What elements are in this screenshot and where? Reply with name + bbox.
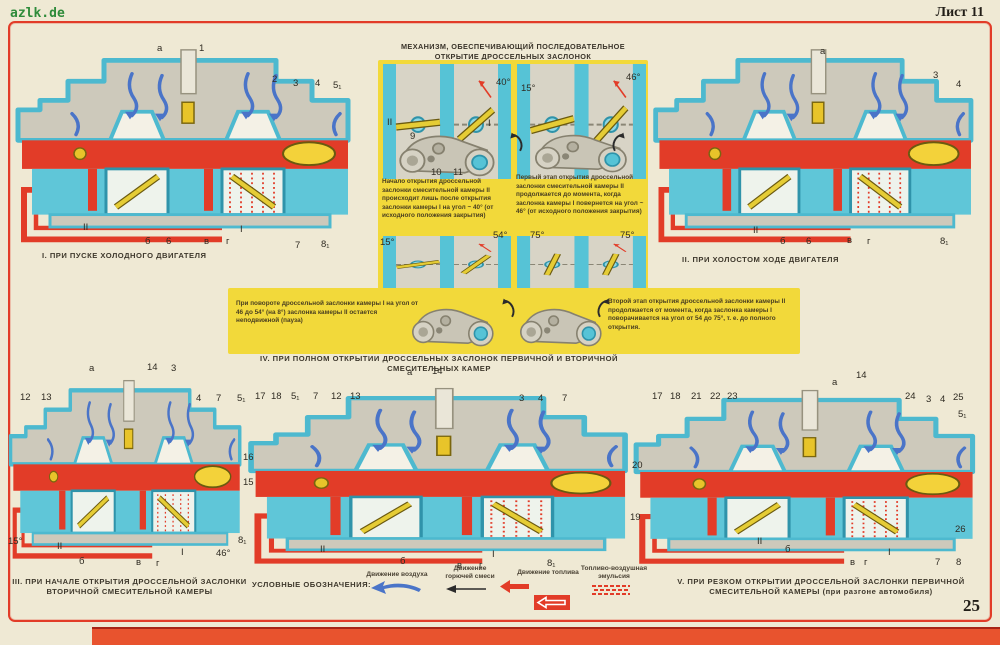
callout-label: 5₁ bbox=[291, 391, 300, 402]
callout-label: 15° bbox=[8, 536, 22, 547]
diagram-full-open: 17185₁71213а143471615IIбвгI8₁ bbox=[242, 366, 650, 570]
callout-label: 54° bbox=[493, 230, 507, 241]
callout-label: 3 bbox=[519, 393, 524, 404]
callout-label: 40° bbox=[496, 77, 510, 88]
text-stage1-start: Начало открытия дроссельной заслонки сме… bbox=[382, 178, 510, 236]
callout-label: 17 bbox=[652, 391, 663, 402]
callout-label: 75° bbox=[620, 230, 634, 241]
cam-lever-mechanism-left bbox=[390, 126, 502, 178]
cam-lever-mechanism-pause bbox=[404, 300, 500, 348]
callout-label: г bbox=[479, 560, 482, 571]
callout-label: в bbox=[457, 560, 462, 571]
callout-label: б bbox=[780, 236, 785, 247]
callout-label: в bbox=[136, 557, 141, 568]
legend-item-mixture: Движение горючей смеси bbox=[440, 565, 500, 599]
emulsion-hatch-icon bbox=[592, 583, 630, 597]
page-number: 25 bbox=[963, 596, 980, 616]
callout-label: 14 bbox=[432, 366, 443, 377]
callout-label: II bbox=[57, 541, 62, 552]
callout-label: 10 bbox=[431, 167, 442, 178]
callout-label: в bbox=[847, 235, 852, 246]
caption-diagram-5: V. ПРИ РЕЗКОМ ОТКРЫТИИ ДРОССЕЛЬНОЙ ЗАСЛО… bbox=[665, 577, 977, 598]
text-pause: При повороте дроссельной заслонки камеры… bbox=[236, 300, 420, 350]
callout-label: 4 bbox=[538, 393, 543, 404]
callout-label: 13 bbox=[41, 392, 52, 403]
callout-label: 4 bbox=[956, 79, 961, 90]
callout-label: 8 bbox=[956, 557, 961, 568]
callout-label: 1 bbox=[199, 43, 204, 54]
callout-label: г bbox=[864, 557, 867, 568]
throttle-bores-pause bbox=[383, 236, 511, 290]
callout-label: 5₁ bbox=[958, 409, 967, 420]
callout-label: 5₁ bbox=[333, 80, 342, 91]
callout-label: а bbox=[820, 46, 825, 57]
carburetor-section-cold-start bbox=[10, 47, 370, 247]
callout-label: 3 bbox=[293, 78, 298, 89]
callout-label: 15 bbox=[243, 477, 254, 488]
callout-label: 15° bbox=[380, 237, 394, 248]
callout-label: 18 bbox=[271, 391, 282, 402]
callout-label: I bbox=[488, 118, 491, 129]
callout-label: в bbox=[204, 236, 209, 247]
callout-label: 46° bbox=[626, 72, 640, 83]
callout-label: 12 bbox=[331, 391, 342, 402]
callout-label: а bbox=[157, 43, 162, 54]
legend-item-air: Движение воздуха bbox=[364, 571, 430, 600]
legend-title: УСЛОВНЫЕ ОБОЗНАЧЕНИЯ: bbox=[252, 580, 371, 589]
book-plate-page: { "page": { "watermark": "azlk.de", "she… bbox=[0, 0, 1000, 643]
callout-label: г bbox=[156, 558, 159, 569]
callout-label: 18 bbox=[670, 391, 681, 402]
callout-label: 8₁ bbox=[940, 236, 949, 247]
callout-label: а bbox=[89, 363, 94, 374]
callout-label: 7 bbox=[562, 393, 567, 404]
callout-label: 7 bbox=[935, 557, 940, 568]
callout-label: г bbox=[867, 236, 870, 247]
callout-label: 19 bbox=[630, 512, 641, 523]
air-flow-arrow-icon bbox=[369, 579, 423, 595]
caption-diagram-1: I. ПРИ ПУСКЕ ХОЛОДНОГО ДВИГАТЕЛЯ bbox=[42, 251, 206, 261]
callout-label: 75° bbox=[530, 230, 544, 241]
carburetor-section-full-open bbox=[242, 386, 650, 568]
callout-label: 4 bbox=[196, 393, 201, 404]
callout-label: I bbox=[888, 547, 891, 558]
callout-label: б bbox=[145, 236, 150, 247]
carburetor-section-acceleration bbox=[628, 388, 995, 568]
legend-label-air: Движение воздуха bbox=[364, 571, 430, 579]
callout-label: 3 bbox=[933, 70, 938, 81]
callout-label: 15° bbox=[521, 83, 535, 94]
legend-label-fuel: Движение топлива bbox=[516, 569, 580, 577]
callout-label: 26 bbox=[955, 524, 966, 535]
callout-label: 9 bbox=[410, 131, 415, 142]
text-stage2: Второй этап открытия дроссельной заслонк… bbox=[608, 298, 794, 352]
diagram-secondary-opening: а1431213475₁15°IIбвгI46°8₁ bbox=[5, 360, 255, 572]
watermark-text: azlk.de bbox=[10, 6, 65, 21]
callout-label: 24 bbox=[905, 391, 916, 402]
callout-label: 6 bbox=[806, 236, 811, 247]
callout-label: 3 bbox=[926, 394, 931, 405]
callout-label: 14 bbox=[147, 362, 158, 373]
callout-label: 2 bbox=[272, 74, 277, 85]
callout-label: б bbox=[785, 544, 790, 555]
callout-label: 8₁ bbox=[321, 239, 330, 250]
diagram-idle: а34IIб6вг8₁ bbox=[648, 35, 992, 250]
carburetor-section-idle bbox=[648, 47, 992, 247]
callout-label: 4 bbox=[940, 394, 945, 405]
caption-diagram-2: II. ПРИ ХОЛОСТОМ ХОДЕ ДВИГАТЕЛЯ bbox=[682, 255, 839, 265]
callout-label: II bbox=[83, 222, 88, 233]
callout-label: 16 bbox=[243, 452, 254, 463]
callout-label: 23 bbox=[727, 391, 738, 402]
text-stage1-end: Первый этап открытия дроссельной заслонк… bbox=[516, 174, 644, 236]
callout-label: 7 bbox=[216, 393, 221, 404]
callout-label: 3 bbox=[171, 363, 176, 374]
callout-label: 11 bbox=[453, 167, 463, 178]
callout-label: 7 bbox=[295, 240, 300, 251]
callout-label: 4 bbox=[315, 78, 320, 89]
callout-label: а bbox=[407, 367, 412, 378]
callout-label: II bbox=[757, 536, 762, 547]
diagram-cold-start: а12345₁IIб6вгI78₁ bbox=[10, 35, 370, 250]
callout-label: г bbox=[226, 236, 229, 247]
callout-label: 8₁ bbox=[547, 558, 556, 569]
carburetor-section-secondary-opening bbox=[5, 378, 255, 563]
cam-lever-mechanism-stage2 bbox=[512, 300, 608, 348]
callout-label: II bbox=[387, 117, 392, 128]
callout-label: б bbox=[400, 556, 405, 567]
next-page-edge bbox=[92, 627, 1000, 645]
callout-label: 25 bbox=[953, 392, 964, 403]
throttle-sequence-mechanism-panel: МЕХАНИЗМ, ОБЕСПЕЧИВАЮЩИЙ ПОСЛЕДОВАТЕЛЬНО… bbox=[378, 42, 648, 292]
callout-label: 6 bbox=[166, 236, 171, 247]
callout-label: 14 bbox=[856, 370, 867, 381]
callout-label: I bbox=[240, 224, 243, 235]
mechanism-title-line1: МЕХАНИЗМ, ОБЕСПЕЧИВАЮЩИЙ ПОСЛЕДОВАТЕЛЬНО… bbox=[401, 42, 625, 51]
callout-label: 7 bbox=[313, 391, 318, 402]
callout-label: 17 bbox=[255, 391, 266, 402]
throttle-bores-full-open bbox=[517, 236, 646, 290]
callout-label: 13 bbox=[350, 391, 361, 402]
caption-diagram-3: III. ПРИ НАЧАЛЕ ОТКРЫТИЯ ДРОССЕЛЬНОЙ ЗАС… bbox=[12, 577, 247, 598]
callout-label: II bbox=[753, 225, 758, 236]
callout-label: а bbox=[832, 377, 837, 388]
callout-label: в bbox=[850, 557, 855, 568]
callout-label: 46° bbox=[216, 548, 230, 559]
callout-label: б bbox=[79, 556, 84, 567]
rotation-arrow-icon bbox=[611, 130, 637, 156]
mixture-flow-arrow-icon bbox=[446, 584, 488, 594]
callout-label: 20 bbox=[632, 460, 643, 471]
callout-label: 21 bbox=[691, 391, 702, 402]
callout-label: II bbox=[320, 544, 325, 555]
fuel-flow-boxed-arrow-icon bbox=[534, 595, 570, 610]
callout-label: 22 bbox=[710, 391, 721, 402]
diagram-acceleration: 1718212223а142434255₁201926IIбвгI78 bbox=[628, 370, 995, 570]
callout-label: I bbox=[181, 547, 184, 558]
callout-label: 12 bbox=[20, 392, 31, 403]
sheet-label: Лист 11 bbox=[936, 5, 984, 21]
legend-item-emulsion: Топливо-воздушная эмульсия bbox=[580, 565, 648, 602]
rotation-arrow-icon bbox=[498, 130, 524, 156]
fuel-flow-arrow-icon bbox=[500, 580, 530, 593]
pause-stage2-strip: При повороте дроссельной заслонки камеры… bbox=[228, 288, 800, 354]
callout-label: I bbox=[492, 549, 495, 560]
